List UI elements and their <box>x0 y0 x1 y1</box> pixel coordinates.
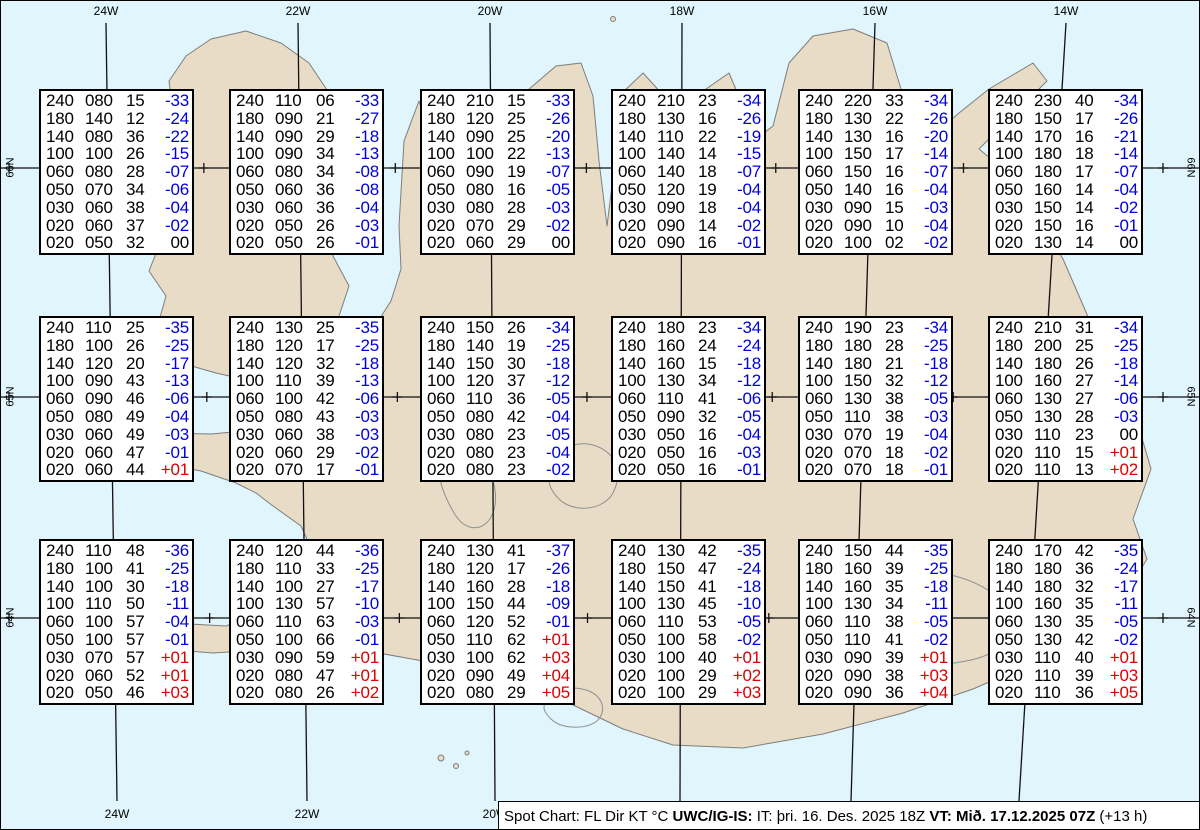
temp-value: -02 <box>915 234 948 252</box>
dir-value: 130 <box>1034 408 1075 426</box>
station-level-row: 03006038-04 <box>46 199 192 217</box>
dir-value: 070 <box>85 181 126 199</box>
fl-value: 140 <box>427 355 466 373</box>
station-level-row: 02008029+05 <box>427 684 573 702</box>
fl-value: 140 <box>805 128 844 146</box>
kt-value: 39 <box>885 649 915 667</box>
dir-value: 080 <box>466 444 507 462</box>
fl-value: 050 <box>236 631 275 649</box>
station-level-row: 02009016-01 <box>618 234 764 252</box>
kt-value: 13 <box>1075 461 1105 479</box>
dir-value: 060 <box>275 199 316 217</box>
dir-value: 180 <box>1034 145 1075 163</box>
station-level-row: 24018023-34 <box>618 319 764 337</box>
dir-value: 130 <box>844 110 885 128</box>
kt-value: 16 <box>698 110 728 128</box>
station-level-row: 14018026-18 <box>995 355 1141 373</box>
station-level-row: 18018036-24 <box>995 560 1141 578</box>
kt-value: 34 <box>698 372 728 390</box>
dir-value: 150 <box>844 372 885 390</box>
temp-value: -34 <box>728 319 761 337</box>
kt-value: 15 <box>507 92 537 110</box>
kt-value: 26 <box>1075 355 1105 373</box>
station-level-row: 14011022-19 <box>618 128 764 146</box>
kt-value: 31 <box>1075 319 1105 337</box>
temp-value: -07 <box>537 163 570 181</box>
dir-value: 190 <box>844 319 885 337</box>
kt-value: 28 <box>885 337 915 355</box>
temp-value: -36 <box>346 542 379 560</box>
kt-value: 52 <box>126 667 156 685</box>
kt-value: 44 <box>507 595 537 613</box>
fl-value: 060 <box>236 390 275 408</box>
temp-value: -25 <box>915 337 948 355</box>
temp-value: -34 <box>1105 92 1138 110</box>
fl-value: 180 <box>236 337 275 355</box>
dir-value: 120 <box>275 337 316 355</box>
kt-value: 25 <box>126 319 156 337</box>
dir-value: 110 <box>275 372 316 390</box>
temp-value: -24 <box>156 110 189 128</box>
kt-value: 21 <box>885 355 915 373</box>
station-level-row: 18012017-26 <box>427 560 573 578</box>
station-level-row: 18018028-25 <box>805 337 951 355</box>
kt-value: 16 <box>885 128 915 146</box>
fl-value: 050 <box>46 631 85 649</box>
station-level-row: 18015047-24 <box>618 560 764 578</box>
temp-value: -06 <box>728 390 761 408</box>
fl-value: 020 <box>236 444 275 462</box>
station-level-row: 24022033-34 <box>805 92 951 110</box>
station-level-row: 10013057-10 <box>236 595 382 613</box>
temp-value: -05 <box>915 613 948 631</box>
kt-value: 39 <box>316 372 346 390</box>
kt-value: 42 <box>698 542 728 560</box>
kt-value: 23 <box>507 444 537 462</box>
temp-value: +03 <box>728 684 761 702</box>
fl-value: 140 <box>236 128 275 146</box>
fl-value: 060 <box>995 613 1034 631</box>
station-level-row: 10013034-12 <box>618 372 764 390</box>
kt-value: 39 <box>1075 667 1105 685</box>
temp-value: -14 <box>915 145 948 163</box>
kt-value: 40 <box>1075 649 1105 667</box>
kt-value: 23 <box>507 461 537 479</box>
station-box: 24011006-3318009021-2714009029-181000903… <box>229 89 384 255</box>
dir-value: 110 <box>844 613 885 631</box>
station-level-row: 24011006-33 <box>236 92 382 110</box>
fl-value: 100 <box>995 145 1034 163</box>
dir-value: 120 <box>466 613 507 631</box>
station-level-row: 02005016-01 <box>618 461 764 479</box>
station-level-row: 0201301400 <box>995 234 1141 252</box>
info-bar-text: Spot Chart: FL Dir KT °C <box>504 808 673 825</box>
kt-value: 17 <box>507 560 537 578</box>
temp-value: -01 <box>156 631 189 649</box>
fl-value: 240 <box>995 542 1034 560</box>
dir-value: 090 <box>466 667 507 685</box>
kt-value: 17 <box>885 145 915 163</box>
station-level-row: 18013022-26 <box>805 110 951 128</box>
kt-value: 29 <box>316 128 346 146</box>
station-level-row: 18009021-27 <box>236 110 382 128</box>
station-level-row: 03015014-02 <box>995 199 1141 217</box>
station-level-row: 10013034-11 <box>805 595 951 613</box>
station-level-row: 06011053-05 <box>618 613 764 631</box>
station-box: 24023040-3418015017-2614017016-211001801… <box>988 89 1143 255</box>
dir-value: 090 <box>657 234 698 252</box>
kt-value: 30 <box>126 578 156 596</box>
fl-value: 020 <box>427 461 466 479</box>
dir-value: 100 <box>657 649 698 667</box>
temp-value: -25 <box>537 337 570 355</box>
temp-value: -24 <box>728 337 761 355</box>
station-level-row: 18015017-26 <box>995 110 1141 128</box>
temp-value: -03 <box>915 408 948 426</box>
temp-value: -05 <box>728 613 761 631</box>
temp-value: -35 <box>1105 542 1138 560</box>
dir-value: 110 <box>844 408 885 426</box>
station-level-row: 06008028-07 <box>46 163 192 181</box>
dir-value: 090 <box>85 372 126 390</box>
fl-value: 180 <box>995 337 1034 355</box>
fl-value: 050 <box>995 181 1034 199</box>
temp-value: -18 <box>346 128 379 146</box>
fl-value: 180 <box>46 110 85 128</box>
fl-value: 050 <box>805 181 844 199</box>
kt-value: 32 <box>316 355 346 373</box>
fl-value: 060 <box>236 163 275 181</box>
fl-value: 030 <box>995 199 1034 217</box>
temp-value: -05 <box>1105 613 1138 631</box>
temp-value: -04 <box>728 181 761 199</box>
station-level-row: 24015026-34 <box>427 319 573 337</box>
kt-value: 53 <box>698 613 728 631</box>
fl-value: 060 <box>427 163 466 181</box>
station-level-row: 02009014-02 <box>618 217 764 235</box>
temp-value: -04 <box>915 217 948 235</box>
dir-value: 150 <box>844 163 885 181</box>
kt-value: 57 <box>126 649 156 667</box>
fl-value: 100 <box>805 595 844 613</box>
temp-value: -33 <box>537 92 570 110</box>
kt-value: 40 <box>698 649 728 667</box>
dir-value: 080 <box>275 408 316 426</box>
fl-value: 020 <box>805 444 844 462</box>
station-level-row: 24013042-35 <box>618 542 764 560</box>
temp-value: -26 <box>537 110 570 128</box>
fl-value: 050 <box>995 631 1034 649</box>
station-level-row: 06011041-06 <box>618 390 764 408</box>
dir-value: 210 <box>1034 319 1075 337</box>
fl-value: 140 <box>236 355 275 373</box>
station-level-row: 03007057+01 <box>46 649 192 667</box>
fl-value: 100 <box>427 372 466 390</box>
temp-value: +01 <box>156 461 189 479</box>
temp-value: -02 <box>915 444 948 462</box>
station-level-row: 05008049-04 <box>46 408 192 426</box>
temp-value: -20 <box>537 128 570 146</box>
temp-value: -05 <box>537 181 570 199</box>
fl-value: 030 <box>427 426 466 444</box>
fl-value: 140 <box>995 578 1034 596</box>
fl-value: 240 <box>236 319 275 337</box>
station-level-row: 05012019-04 <box>618 181 764 199</box>
kt-value: 40 <box>1075 92 1105 110</box>
station-level-row: 06011038-05 <box>805 613 951 631</box>
dir-value: 120 <box>466 372 507 390</box>
station-level-row: 02010029+02 <box>618 667 764 685</box>
kt-value: 30 <box>507 355 537 373</box>
station-level-row: 24019023-34 <box>805 319 951 337</box>
kt-value: 26 <box>316 217 346 235</box>
fl-value: 180 <box>427 110 466 128</box>
station-level-row: 05010066-01 <box>236 631 382 649</box>
station-level-row: 10018018-14 <box>995 145 1141 163</box>
station-box: 24022033-3418013022-2614013016-201001501… <box>798 89 953 255</box>
dir-value: 120 <box>275 542 316 560</box>
temp-value: +01 <box>346 667 379 685</box>
fl-value: 020 <box>46 667 85 685</box>
station-level-row: 14018032-17 <box>995 578 1141 596</box>
station-box: 24017042-3518018036-2414018032-171001603… <box>988 539 1143 705</box>
station-level-row: 24015044-35 <box>805 542 951 560</box>
temp-value: -06 <box>156 181 189 199</box>
dir-value: 100 <box>844 234 885 252</box>
temp-value: -08 <box>346 163 379 181</box>
dir-value: 080 <box>466 461 507 479</box>
dir-value: 100 <box>85 337 126 355</box>
kt-value: 19 <box>507 337 537 355</box>
kt-value: 15 <box>1075 444 1105 462</box>
fl-value: 020 <box>805 667 844 685</box>
station-box: 24013042-3518015047-2414015041-181001304… <box>611 539 766 705</box>
kt-value: 16 <box>885 181 915 199</box>
temp-value: -35 <box>915 542 948 560</box>
kt-value: 14 <box>1075 234 1105 252</box>
fl-value: 180 <box>618 110 657 128</box>
temp-value: -04 <box>915 426 948 444</box>
station-level-row: 06010057-04 <box>46 613 192 631</box>
dir-value: 210 <box>466 92 507 110</box>
fl-value: 240 <box>427 319 466 337</box>
kt-value: 32 <box>1075 578 1105 596</box>
temp-value: -04 <box>156 199 189 217</box>
temp-value: 00 <box>1105 234 1138 252</box>
station-level-row: 06015016-07 <box>805 163 951 181</box>
kt-value: 22 <box>698 128 728 146</box>
fl-value: 030 <box>805 649 844 667</box>
dir-value: 090 <box>275 110 316 128</box>
temp-value: -25 <box>156 337 189 355</box>
fl-value: 020 <box>805 684 844 702</box>
temp-value: -13 <box>537 145 570 163</box>
station-level-row: 06013035-05 <box>995 613 1141 631</box>
temp-value: -18 <box>728 355 761 373</box>
kt-value: 25 <box>507 110 537 128</box>
kt-value: 36 <box>126 128 156 146</box>
temp-value: -02 <box>537 461 570 479</box>
station-box: 24011025-3518010026-2514012020-171000904… <box>39 316 194 482</box>
temp-value: -34 <box>728 92 761 110</box>
dir-value: 110 <box>85 595 126 613</box>
dir-value: 110 <box>85 319 126 337</box>
kt-value: 38 <box>316 426 346 444</box>
station-level-row: 14009029-18 <box>236 128 382 146</box>
kt-value: 63 <box>316 613 346 631</box>
dir-value: 110 <box>1034 649 1075 667</box>
kt-value: 38 <box>885 667 915 685</box>
temp-value: -36 <box>156 542 189 560</box>
dir-value: 130 <box>1034 631 1075 649</box>
dir-value: 100 <box>275 631 316 649</box>
fl-value: 060 <box>618 390 657 408</box>
dir-value: 110 <box>657 128 698 146</box>
dir-value: 060 <box>275 444 316 462</box>
temp-value: -04 <box>728 199 761 217</box>
temp-value: +04 <box>537 667 570 685</box>
station-level-row: 02008023-04 <box>427 444 573 462</box>
fl-value: 240 <box>618 319 657 337</box>
fl-value: 180 <box>995 560 1034 578</box>
dir-value: 080 <box>85 163 126 181</box>
station-level-row: 10010022-13 <box>427 145 573 163</box>
temp-value: -03 <box>346 217 379 235</box>
station-level-row: 02009038+03 <box>805 667 951 685</box>
dir-value: 080 <box>275 163 316 181</box>
dir-value: 130 <box>844 595 885 613</box>
dir-value: 160 <box>1034 181 1075 199</box>
kt-value: 47 <box>126 444 156 462</box>
kt-value: 23 <box>1075 426 1105 444</box>
dir-value: 130 <box>275 319 316 337</box>
station-box: 24012044-3618011033-2514010027-171001305… <box>229 539 384 705</box>
temp-value: -10 <box>728 595 761 613</box>
kt-value: 14 <box>1075 181 1105 199</box>
fl-value: 140 <box>427 578 466 596</box>
temp-value: -10 <box>346 595 379 613</box>
kt-value: 38 <box>885 408 915 426</box>
temp-value: -14 <box>1105 372 1138 390</box>
station-box: 24018023-3418016024-2414016015-181001303… <box>611 316 766 482</box>
fl-value: 100 <box>427 595 466 613</box>
fl-value: 030 <box>46 199 85 217</box>
station-level-row: 10011050-11 <box>46 595 192 613</box>
dir-value: 110 <box>657 613 698 631</box>
temp-value: -15 <box>728 145 761 163</box>
temp-value: -05 <box>537 390 570 408</box>
dir-value: 120 <box>657 181 698 199</box>
station-level-row: 05009032-05 <box>618 408 764 426</box>
kt-value: 43 <box>126 372 156 390</box>
station-level-row: 02007029-02 <box>427 217 573 235</box>
kt-value: 28 <box>507 578 537 596</box>
dir-value: 130 <box>466 542 507 560</box>
fl-value: 060 <box>46 163 85 181</box>
kt-value: 36 <box>885 684 915 702</box>
temp-value: -34 <box>537 319 570 337</box>
station-level-row: 02010029+03 <box>618 684 764 702</box>
dir-value: 180 <box>844 355 885 373</box>
kt-value: 36 <box>1075 560 1105 578</box>
station-level-row: 10012037-12 <box>427 372 573 390</box>
kt-value: 27 <box>1075 372 1105 390</box>
fl-value: 020 <box>46 444 85 462</box>
station-level-row: 14012032-18 <box>236 355 382 373</box>
fl-value: 180 <box>618 337 657 355</box>
station-level-row: 03006049-03 <box>46 426 192 444</box>
dir-value: 200 <box>1034 337 1075 355</box>
temp-value: -02 <box>728 631 761 649</box>
station-level-row: 02008026+02 <box>236 684 382 702</box>
station-level-row: 02005026-03 <box>236 217 382 235</box>
kt-value: 17 <box>1075 163 1105 181</box>
kt-value: 48 <box>126 542 156 560</box>
station-level-row: 03007019-04 <box>805 426 951 444</box>
fl-value: 180 <box>805 560 844 578</box>
station-level-row: 02009036+04 <box>805 684 951 702</box>
station-level-row: 18012025-26 <box>427 110 573 128</box>
fl-value: 030 <box>995 426 1034 444</box>
dir-value: 140 <box>657 145 698 163</box>
temp-value: -19 <box>728 128 761 146</box>
temp-value: -35 <box>728 542 761 560</box>
station-level-row: 02007018-02 <box>805 444 951 462</box>
kt-value: 28 <box>126 163 156 181</box>
dir-value: 140 <box>844 181 885 199</box>
kt-value: 17 <box>1075 110 1105 128</box>
fl-value: 060 <box>805 613 844 631</box>
station-level-row: 24021023-34 <box>618 92 764 110</box>
kt-value: 62 <box>507 649 537 667</box>
station-level-row: 03011040+01 <box>995 649 1141 667</box>
fl-value: 020 <box>46 684 85 702</box>
dir-value: 100 <box>657 667 698 685</box>
station-level-row: 24021015-33 <box>427 92 573 110</box>
fl-value: 140 <box>46 578 85 596</box>
fl-value: 020 <box>46 461 85 479</box>
kt-value: 47 <box>698 560 728 578</box>
fl-value: 050 <box>427 408 466 426</box>
station-level-row: 14009025-20 <box>427 128 573 146</box>
temp-value: +03 <box>1105 667 1138 685</box>
kt-value: 14 <box>698 217 728 235</box>
fl-value: 050 <box>236 408 275 426</box>
temp-value: -13 <box>346 145 379 163</box>
kt-value: 38 <box>126 199 156 217</box>
station-level-row: 06013038-05 <box>805 390 951 408</box>
kt-value: 29 <box>698 684 728 702</box>
station-level-row: 24021031-34 <box>995 319 1141 337</box>
station-level-row: 06018017-07 <box>995 163 1141 181</box>
station-level-row: 06011036-05 <box>427 390 573 408</box>
temp-value: -26 <box>537 560 570 578</box>
dir-value: 100 <box>85 631 126 649</box>
temp-value: +01 <box>346 649 379 667</box>
fl-value: 060 <box>618 163 657 181</box>
fl-value: 180 <box>805 337 844 355</box>
station-level-row: 05006036-08 <box>236 181 382 199</box>
dir-value: 110 <box>1034 461 1075 479</box>
temp-value: -34 <box>915 92 948 110</box>
station-level-row: 05014016-04 <box>805 181 951 199</box>
temp-value: -07 <box>728 163 761 181</box>
dir-value: 140 <box>466 337 507 355</box>
temp-value: -01 <box>537 613 570 631</box>
station-box: 24021031-3418020025-2514018026-181001602… <box>988 316 1143 482</box>
kt-value: 33 <box>316 560 346 578</box>
dir-value: 180 <box>1034 578 1075 596</box>
